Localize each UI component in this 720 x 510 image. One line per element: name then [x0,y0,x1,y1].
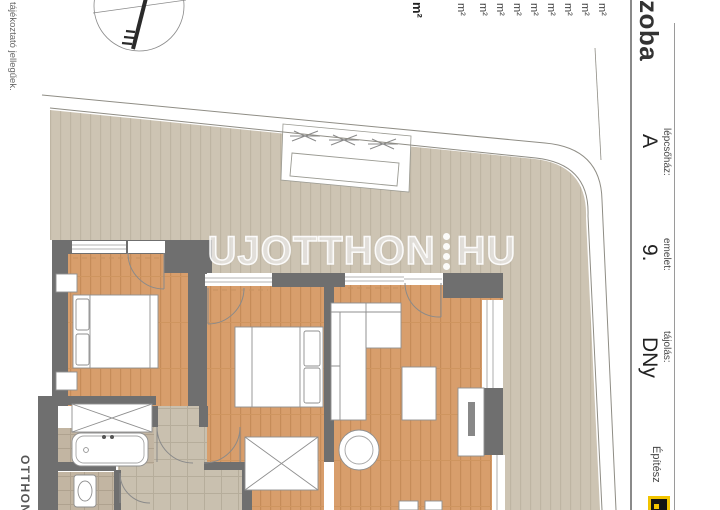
watermark-text-right: HU [457,229,517,274]
north-arrow-icon [93,0,186,51]
bathtub [72,433,148,466]
watermark: UJOTTHON HU [212,229,512,273]
floorplan-screenshot: szoba m² m² m² m² m² m² m² m² m² m² lépc… [0,0,720,510]
washbasin [74,475,96,507]
bedroom1-wardrobe [72,404,152,432]
armchair [339,430,379,470]
dots-separator-icon [443,231,450,271]
tv-bench [458,388,484,456]
bedroom2-wardrobe [245,437,318,490]
watermark-text-left: UJOTTHON [208,229,436,274]
bedroom2-bed [235,327,323,407]
coffee-table [402,367,436,420]
